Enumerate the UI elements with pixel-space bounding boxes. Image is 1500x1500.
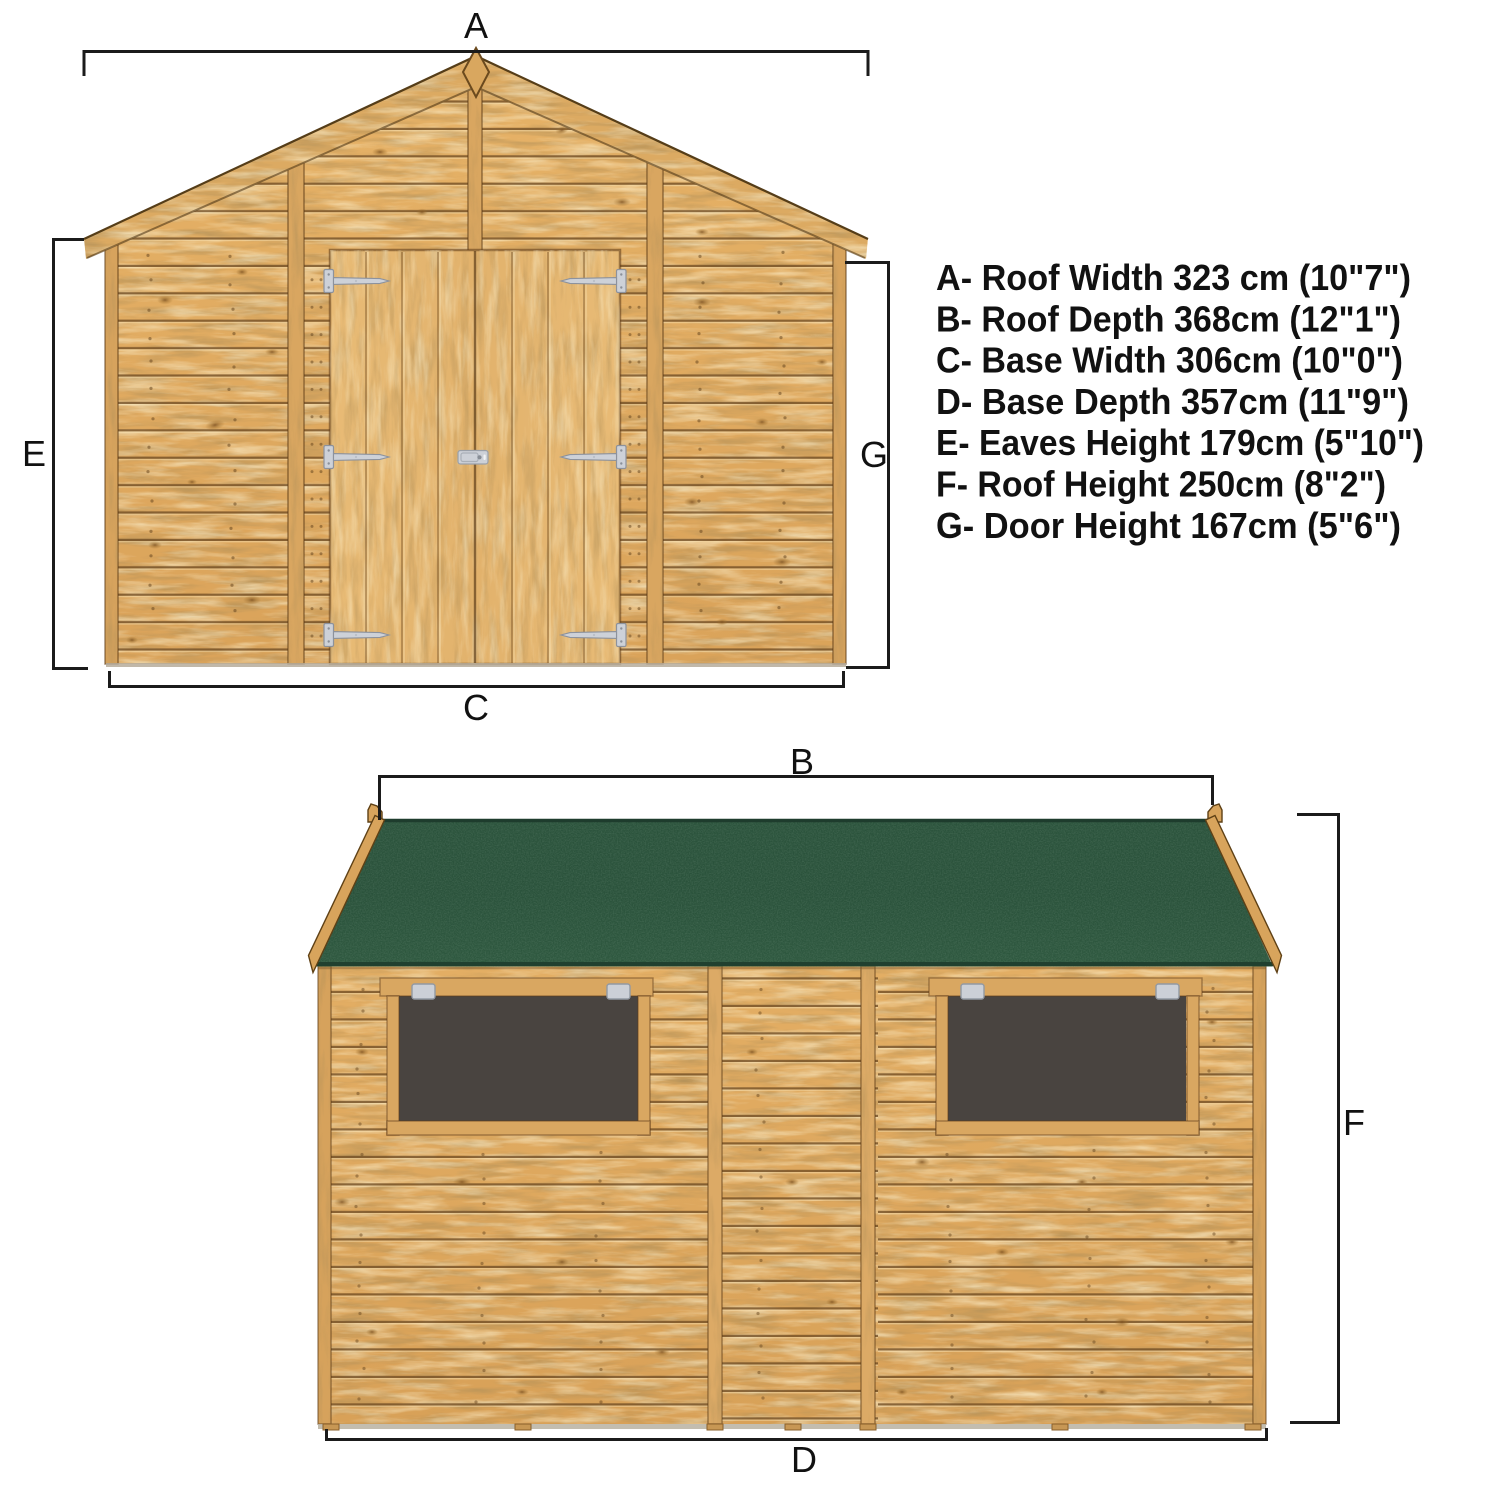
svg-text:E: E (22, 433, 46, 474)
svg-text:B- Roof Depth 368cm (12"1"): B- Roof Depth 368cm (12"1") (936, 298, 1401, 339)
svg-text:D: D (791, 1439, 817, 1480)
svg-text:B: B (790, 741, 814, 782)
svg-text:D- Base Depth 357cm (11"9"): D- Base Depth 357cm (11"9") (936, 381, 1409, 422)
svg-text:E- Eaves Height 179cm (5"10"): E- Eaves Height 179cm (5"10") (936, 422, 1424, 463)
svg-text:A- Roof Width 323 cm (10"7"): A- Roof Width 323 cm (10"7") (936, 257, 1411, 298)
svg-text:F- Roof Height 250cm (8"2"): F- Roof Height 250cm (8"2") (936, 464, 1386, 505)
svg-text:A: A (464, 5, 488, 46)
svg-text:G- Door Height 167cm (5"6"): G- Door Height 167cm (5"6") (936, 505, 1401, 546)
svg-text:C: C (463, 687, 489, 728)
svg-text:G: G (860, 434, 888, 475)
svg-text:F: F (1343, 1102, 1365, 1143)
svg-text:C- Base Width 306cm (10"0"): C- Base Width 306cm (10"0") (936, 340, 1403, 381)
